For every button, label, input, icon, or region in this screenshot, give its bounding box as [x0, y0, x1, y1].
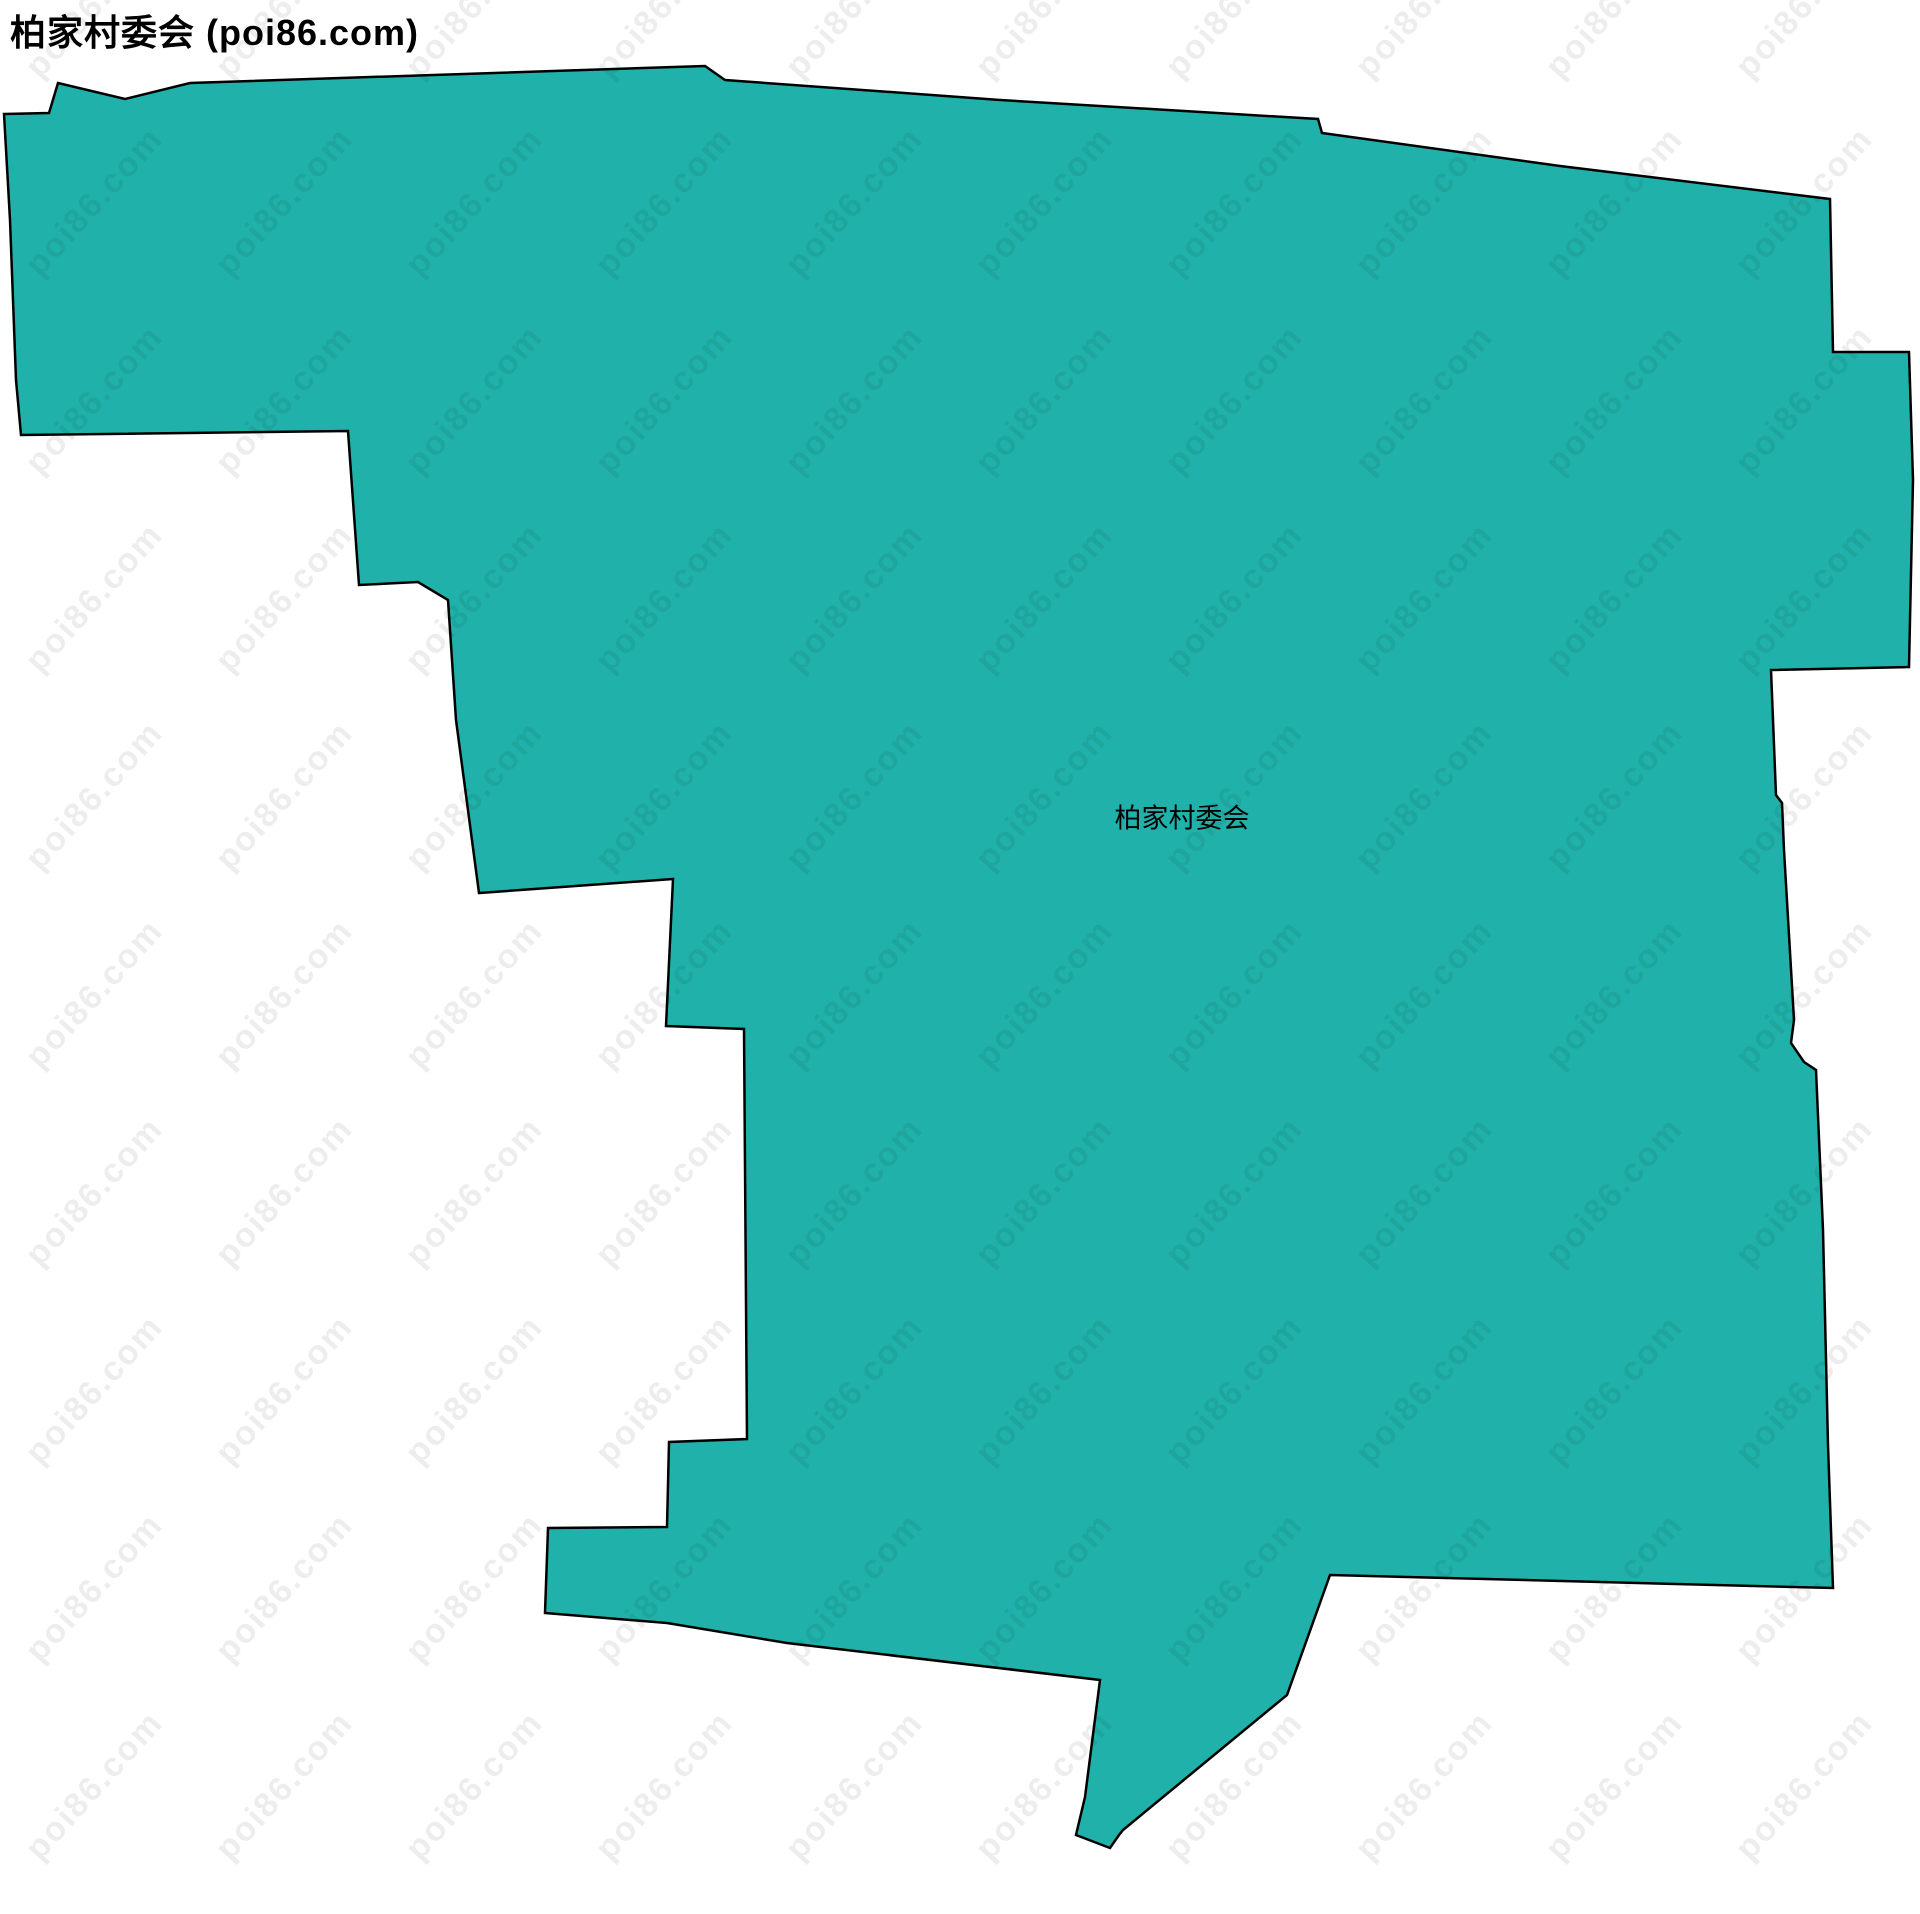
watermark-tile: poi86.com: [588, 1704, 741, 1868]
watermark-tile: poi86.com: [1348, 0, 1501, 85]
watermark-tile: poi86.com: [18, 1110, 171, 1274]
watermark-tile: poi86.com: [398, 912, 551, 1076]
watermark-tile: poi86.com: [18, 1308, 171, 1472]
watermark-tile: poi86.com: [208, 1704, 361, 1868]
watermark-tile: poi86.com: [1348, 1902, 1501, 1914]
watermark-tile: poi86.com: [208, 912, 361, 1076]
watermark-tile: poi86.com: [1348, 1704, 1501, 1868]
watermark-tile: poi86.com: [18, 912, 171, 1076]
watermark-tile: poi86.com: [208, 1110, 361, 1274]
watermark-tile: poi86.com: [1728, 1704, 1881, 1868]
watermark-tile: poi86.com: [778, 1902, 931, 1914]
watermark-tile: poi86.com: [398, 1902, 551, 1914]
watermark-tile: poi86.com: [18, 1902, 171, 1914]
watermark-tile: poi86.com: [968, 0, 1121, 85]
watermark-tile: poi86.com: [1728, 1902, 1881, 1914]
watermark-tile: poi86.com: [18, 714, 171, 878]
watermark-tile: poi86.com: [18, 516, 171, 680]
watermark-tile: poi86.com: [398, 1110, 551, 1274]
watermark-tile: poi86.com: [398, 1704, 551, 1868]
watermark-tile: poi86.com: [398, 1308, 551, 1472]
watermark-tile: poi86.com: [18, 1704, 171, 1868]
watermark-tile: poi86.com: [1538, 1704, 1691, 1868]
watermark-tile: poi86.com: [1158, 0, 1311, 85]
watermark-tile: poi86.com: [398, 1506, 551, 1670]
region-label: 柏家村委会: [1115, 797, 1250, 836]
watermark-tile: poi86.com: [208, 1308, 361, 1472]
page-title: 柏家村委会 (poi86.com): [10, 4, 419, 56]
watermark-tile: poi86.com: [18, 1506, 171, 1670]
watermark-tile: poi86.com: [208, 1506, 361, 1670]
map-canvas: poi86.compoi86.compoi86.compoi86.compoi8…: [0, 0, 1920, 1914]
watermark-tile: poi86.com: [1728, 0, 1881, 85]
watermark-tile: poi86.com: [588, 1110, 741, 1274]
watermark-tile: poi86.com: [208, 1902, 361, 1914]
watermark-tile: poi86.com: [1538, 1902, 1691, 1914]
watermark-tile: poi86.com: [208, 516, 361, 680]
watermark-tile: poi86.com: [1538, 0, 1691, 85]
map-stage: poi86.compoi86.compoi86.compoi86.compoi8…: [0, 0, 1920, 1914]
watermark-tile: poi86.com: [208, 714, 361, 878]
watermark-tile: poi86.com: [1158, 1902, 1311, 1914]
watermark-tile: poi86.com: [778, 1704, 931, 1868]
watermark-tile: poi86.com: [968, 1902, 1121, 1914]
watermark-tile: poi86.com: [778, 0, 931, 85]
watermark-tile: poi86.com: [588, 1902, 741, 1914]
